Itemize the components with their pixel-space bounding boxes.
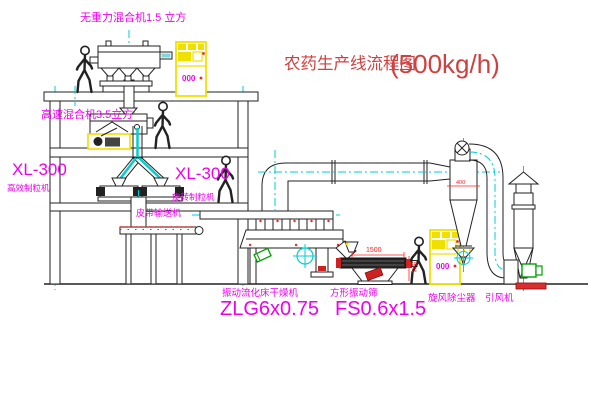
label-granulator-right-name: 旋转制粒机 [172, 192, 215, 202]
label-mixer-mid: 高速混合机3.5立方 [41, 107, 133, 121]
exhaust-stack-and-fan [504, 166, 546, 292]
label-screen-model: FS0.6x1.5 [335, 298, 426, 320]
label-granulator-left-name: 高效制粒机 [7, 183, 50, 193]
label-cyclone-name: 旋风除尘器 [428, 292, 476, 304]
cabinet-2-display: 000 [436, 262, 450, 271]
diagram-title-capacity: (500kg/h) [390, 49, 500, 79]
control-cabinet-2 [430, 230, 460, 284]
person-figure-floor2 [155, 102, 170, 148]
label-granulator-left-model: XL-300 [12, 160, 67, 179]
dim-screen-height: 541 [410, 262, 417, 273]
cabinet-1-display: 000 [182, 74, 196, 83]
dim-cyclone-inlet: 400 [456, 180, 465, 186]
diagram-svg: 农药生产线流程图 (500kg/h) 无重力混合机1.5 立方 高速混合机3.5… [0, 0, 600, 403]
label-granulator-right-model: XL-300 [175, 164, 230, 183]
label-belt-conveyor: 皮带输送机 [136, 207, 181, 218]
label-mixer-top: 无重力混合机1.5 立方 [80, 10, 186, 24]
label-fan-name: 引风机 [485, 292, 514, 304]
person-figure-roof [77, 46, 92, 92]
control-cabinet-1 [176, 42, 206, 96]
label-dryer-model: ZLG6x0.75 [220, 298, 319, 320]
cad-flow-diagram: 农药生产线流程图 (500kg/h) 无重力混合机1.5 立方 高速混合机3.5… [0, 0, 600, 403]
dim-screen-length: 1500 [366, 247, 382, 254]
